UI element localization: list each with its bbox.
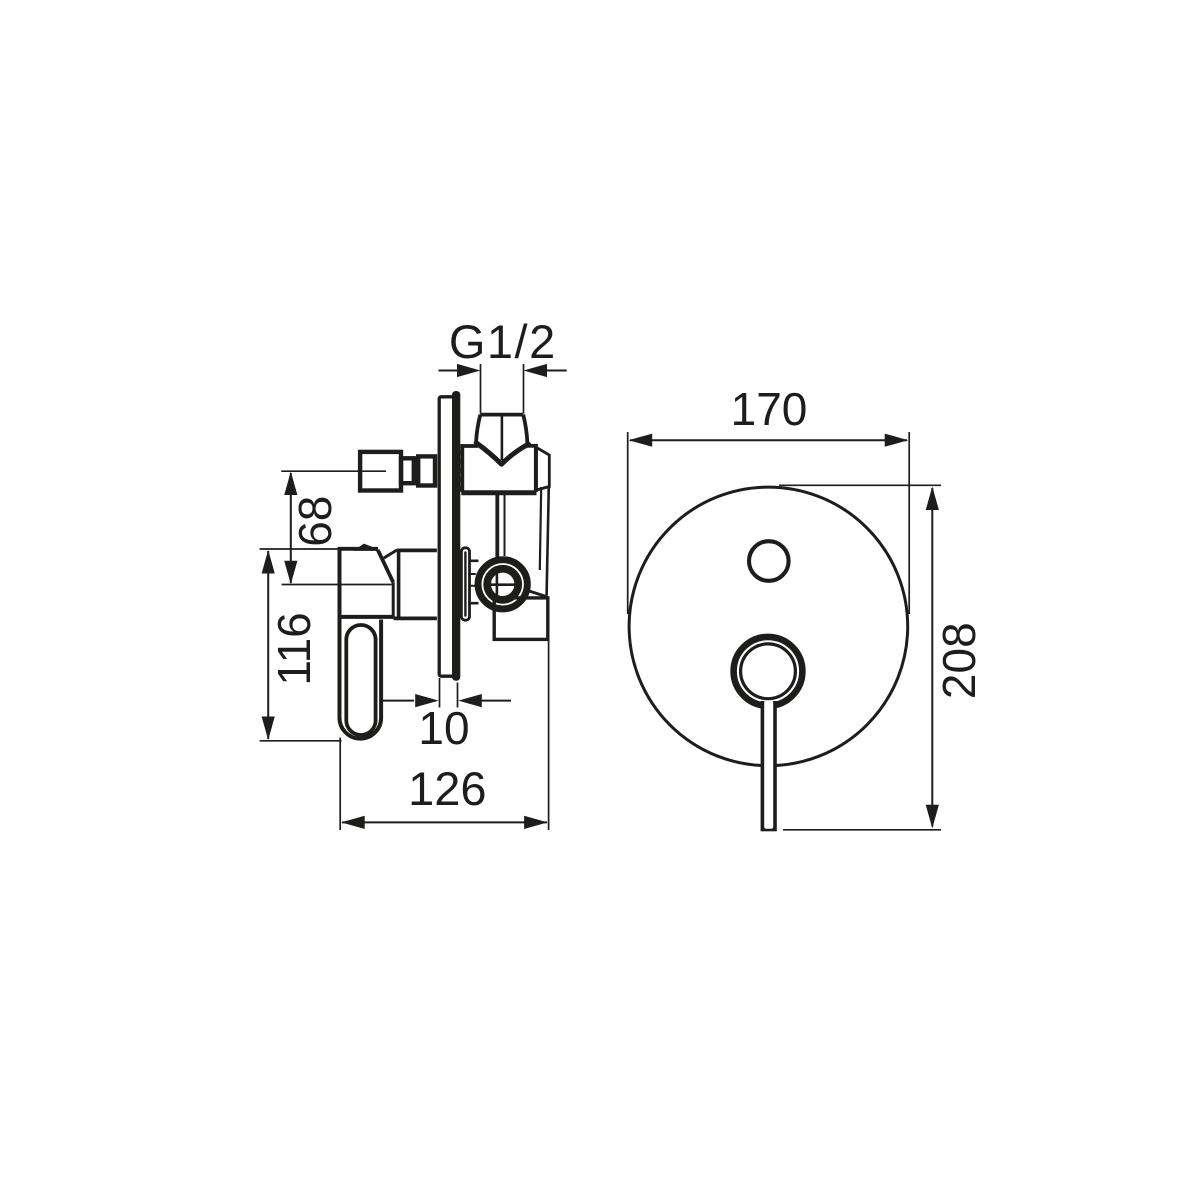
svg-text:G1/2: G1/2: [449, 315, 557, 368]
svg-text:10: 10: [418, 702, 469, 754]
svg-text:116: 116: [268, 612, 320, 685]
svg-text:68: 68: [289, 496, 341, 547]
svg-text:170: 170: [731, 383, 808, 435]
svg-text:126: 126: [408, 762, 486, 815]
svg-text:208: 208: [933, 622, 985, 699]
